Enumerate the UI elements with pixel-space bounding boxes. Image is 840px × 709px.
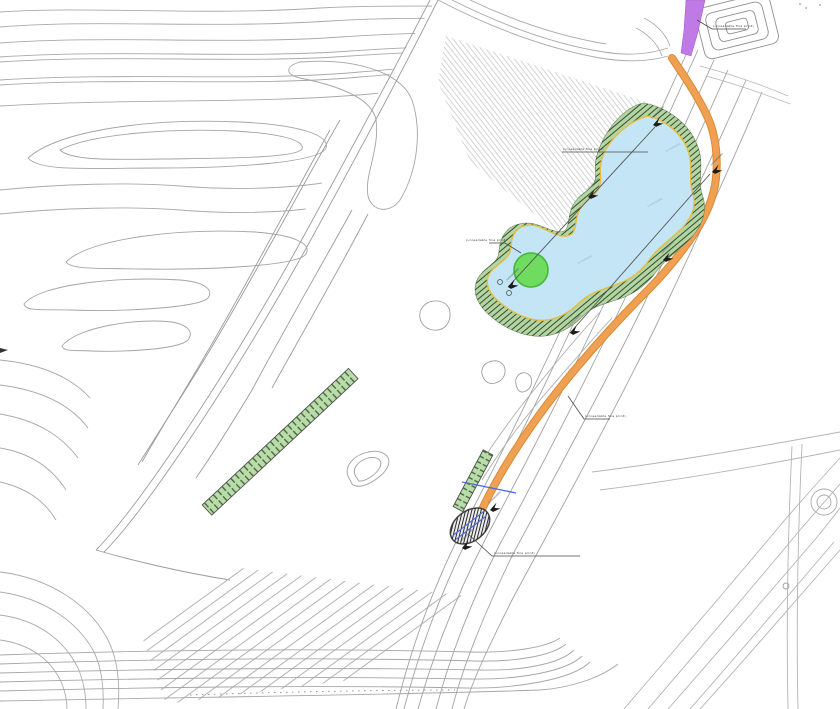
crossing-structure-ellipse bbox=[443, 501, 496, 552]
tram-stub-purple bbox=[681, 0, 705, 56]
embankment-slope-lines bbox=[96, 0, 438, 580]
contour-line bbox=[0, 482, 56, 520]
contour-line bbox=[470, 0, 606, 44]
terraced-mound-topright bbox=[694, 0, 780, 60]
contour-line bbox=[0, 592, 103, 709]
island-shape bbox=[516, 373, 532, 392]
planting-strip-long bbox=[202, 368, 358, 515]
road-line bbox=[787, 446, 792, 709]
island-shape bbox=[420, 301, 450, 330]
bottom-line-bundles bbox=[0, 638, 618, 701]
terrace-shape bbox=[289, 61, 418, 209]
contour-line bbox=[0, 360, 90, 398]
road-shoulder-line bbox=[700, 66, 788, 96]
contour-line bbox=[0, 180, 340, 190]
annotation-tram: (unreadable fine print) bbox=[713, 24, 754, 28]
contour-line bbox=[0, 448, 66, 490]
corner-specks bbox=[799, 3, 821, 9]
edge-tick bbox=[0, 348, 8, 353]
site-plan-drawing: (unreadable) (unreadable) (unreadable) bbox=[0, 0, 840, 709]
contour-line bbox=[452, 0, 668, 54]
road-line bbox=[600, 450, 840, 490]
strip-hatch bbox=[202, 368, 358, 515]
berm-lines bbox=[480, 312, 612, 480]
terrace-shape bbox=[62, 321, 190, 351]
island-shape bbox=[482, 361, 505, 384]
road-line bbox=[797, 444, 802, 709]
contour-line bbox=[644, 18, 670, 46]
island-shape bbox=[354, 457, 380, 481]
islands-blobs bbox=[347, 301, 531, 486]
bottom-right-roads bbox=[592, 432, 840, 709]
annotation-tree: (unreadable fine print) bbox=[466, 238, 507, 242]
contour-line bbox=[0, 12, 575, 27]
embankment-line bbox=[104, 0, 438, 552]
terrace-shape bbox=[66, 231, 307, 269]
terrace-shape bbox=[24, 279, 210, 311]
terrace-shape bbox=[60, 130, 302, 159]
bundle-line bbox=[0, 664, 618, 701]
contour-line bbox=[0, 385, 88, 428]
mound-ring bbox=[694, 0, 780, 60]
road-line bbox=[592, 432, 840, 472]
contour-line bbox=[0, 414, 78, 458]
annotation-embankment: (unreadable fine print) bbox=[563, 147, 604, 151]
embankment-line bbox=[272, 214, 368, 388]
annotation-path: (unreadable fine print) bbox=[585, 414, 626, 418]
road-line bbox=[624, 458, 840, 709]
speck bbox=[805, 7, 807, 9]
contour-line bbox=[0, 2, 560, 12]
small-circle-mark bbox=[783, 583, 789, 589]
island-shape bbox=[347, 451, 389, 486]
contour-line bbox=[636, 28, 662, 56]
contour-line bbox=[0, 24, 585, 43]
bundle-line bbox=[0, 644, 566, 664]
speck bbox=[799, 3, 801, 5]
speck bbox=[819, 4, 821, 6]
terrace-outlines bbox=[24, 61, 417, 351]
contour-line bbox=[0, 640, 67, 709]
annotation-crossing: (unreadable fine print) bbox=[494, 551, 535, 555]
road-line bbox=[668, 508, 840, 709]
site-plan-canvas: (unreadable) (unreadable) (unreadable) bbox=[0, 0, 840, 709]
road-line bbox=[648, 484, 840, 709]
road-line bbox=[700, 550, 840, 709]
embankment-line bbox=[96, 550, 230, 580]
road-line bbox=[690, 542, 834, 709]
contour-line bbox=[0, 206, 330, 214]
dotted-boundary-line bbox=[190, 690, 455, 695]
